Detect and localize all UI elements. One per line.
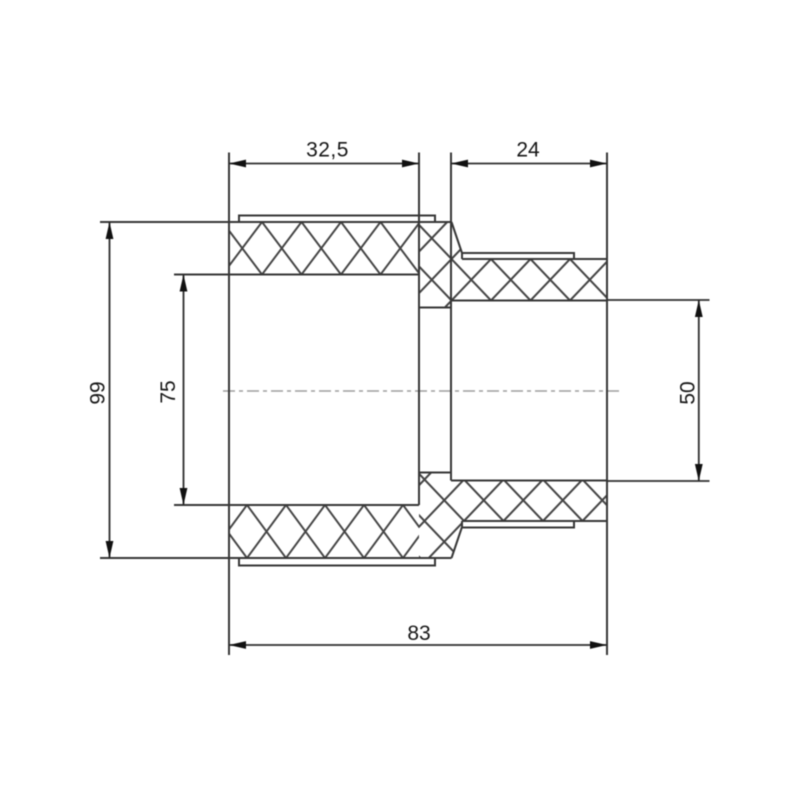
svg-text:32,5: 32,5 bbox=[306, 139, 349, 162]
svg-text:75: 75 bbox=[157, 380, 180, 403]
svg-text:99: 99 bbox=[87, 381, 110, 404]
svg-text:50: 50 bbox=[677, 381, 700, 404]
svg-text:24: 24 bbox=[516, 139, 540, 162]
svg-text:83: 83 bbox=[407, 622, 430, 645]
